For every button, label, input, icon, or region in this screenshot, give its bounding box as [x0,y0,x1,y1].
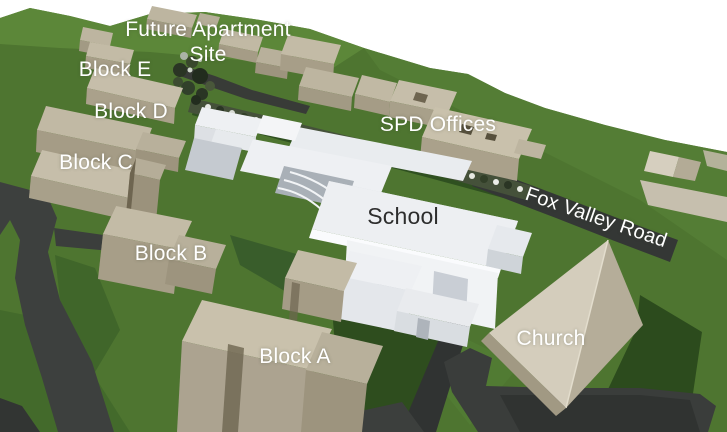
site-3d-scene [0,0,727,432]
site-3d-render: Future Apartment Site Block E Block D Bl… [0,0,727,432]
